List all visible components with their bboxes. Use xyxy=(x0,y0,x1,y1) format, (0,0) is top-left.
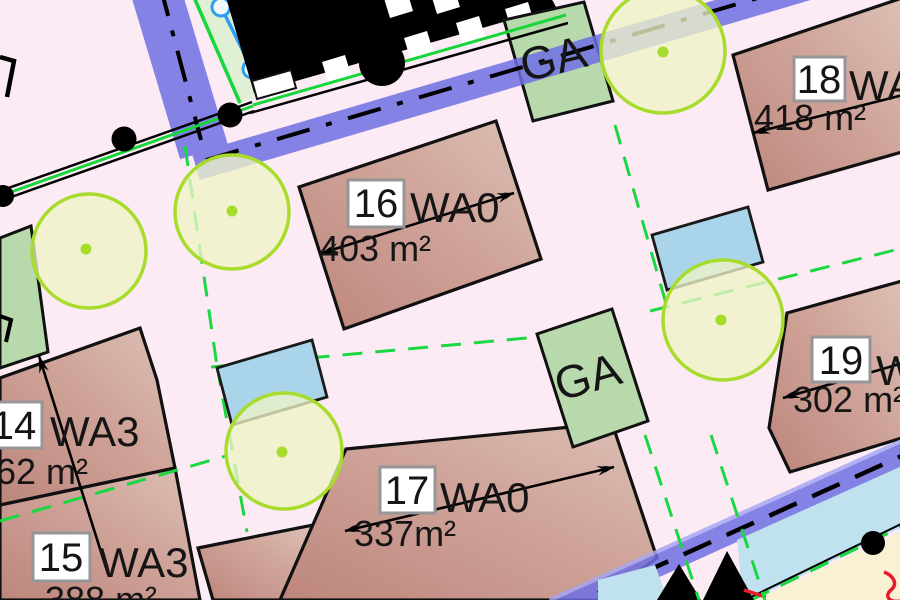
parcel-number: 18 xyxy=(797,58,842,102)
area-label: 337m² xyxy=(354,513,456,554)
tree-row-dot xyxy=(218,103,243,128)
zone-label: WA0 xyxy=(410,184,499,231)
area-label: 302 m² xyxy=(793,379,900,420)
survey-dot xyxy=(861,531,885,555)
tree-row-dot xyxy=(112,127,137,152)
utility-node-icon xyxy=(212,0,230,16)
tree-circle xyxy=(175,155,289,269)
tree-circle xyxy=(663,260,783,380)
parcel-number: 17 xyxy=(385,469,430,513)
parcel-number: 14 xyxy=(0,404,36,448)
area-label: 418 m² xyxy=(754,97,866,138)
parcel-number: 19 xyxy=(819,339,864,383)
parcel-number: 15 xyxy=(39,536,84,580)
tree-circle xyxy=(32,194,146,308)
site-plan-map: GA GA 14 WA3 62 m² 15 WA3 388 m² 16 WA0 … xyxy=(0,0,900,600)
area-label: 62 m² xyxy=(0,451,88,492)
tree-circle xyxy=(601,0,725,113)
area-label: 388 m² xyxy=(45,579,157,600)
area-label: 403 m² xyxy=(319,228,431,269)
zone-label: WA3 xyxy=(50,408,139,455)
parcel-number: 16 xyxy=(354,182,399,226)
tree-row-dot xyxy=(359,40,405,86)
tree-circle xyxy=(226,393,342,509)
